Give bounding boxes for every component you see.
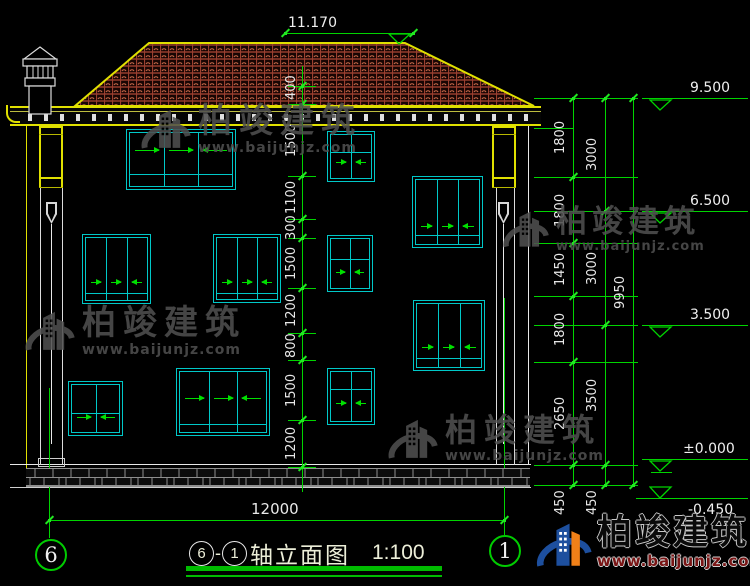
arrow-head: [449, 344, 455, 350]
sash-direction-arrow: [262, 282, 272, 283]
left-column-capital: [39, 126, 63, 188]
dim-extension-line: [534, 362, 638, 363]
dim-tick-dot: [604, 464, 607, 467]
window: [176, 368, 270, 436]
sash-direction-arrow: [355, 272, 364, 273]
arrow-head: [428, 344, 434, 350]
title-axis-right: 1: [222, 541, 247, 566]
dim-tick-dot: [572, 484, 575, 487]
window-transom: [331, 259, 369, 260]
dim-tick-dot: [301, 359, 304, 362]
window: [327, 368, 375, 425]
arrow-head: [340, 269, 346, 275]
title-text: 轴立面图: [250, 536, 350, 570]
window-transom: [417, 358, 481, 359]
window-inner-frame: [71, 384, 120, 433]
sash-direction-arrow: [443, 347, 454, 348]
level-triangle: [649, 460, 673, 472]
dim-tick-dot: [572, 295, 575, 298]
watermark: 柏竣建筑 www.baijunjz.com: [385, 414, 604, 468]
sash-direction-arrow: [356, 162, 366, 163]
watermark-url: www.baijunjz.com: [445, 448, 604, 464]
mid-dim-label: 1200: [284, 423, 299, 463]
watermark: 柏竣建筑 www.baijunjz.com: [500, 206, 705, 256]
level-label: 3.500: [690, 307, 730, 323]
arrow-head: [355, 159, 361, 165]
dim-tick-dot: [301, 419, 304, 422]
dim-tick-dot: [632, 97, 635, 100]
watermark-brand: 柏竣建筑: [198, 104, 362, 140]
dim-tick-dot: [572, 361, 575, 364]
window: [412, 176, 483, 248]
window-transom: [416, 235, 479, 236]
title-axis-left: 6: [189, 541, 214, 566]
dim-tick-dot: [301, 237, 304, 240]
sash-direction-arrow: [336, 162, 346, 163]
title-scale: 1:100: [372, 541, 425, 565]
arrow-head: [96, 279, 102, 285]
mid-dim-label: 1500: [284, 370, 299, 410]
arrow-head: [462, 223, 468, 229]
watermark-url: www.baijunjz.com: [198, 140, 362, 156]
level-stub: [651, 472, 672, 473]
arrow-head: [131, 279, 137, 285]
arrow-head: [341, 159, 347, 165]
right-dim-line-2: [605, 98, 606, 485]
window-mullion: [96, 385, 97, 432]
arrow-head: [100, 414, 106, 420]
sash-direction-arrow: [442, 226, 453, 227]
sash-direction-arrow: [463, 226, 474, 227]
level-triangle: [649, 326, 673, 338]
sash-direction-arrow: [336, 403, 346, 404]
dim-tick-dot: [604, 97, 607, 100]
window-inner-frame: [85, 237, 148, 301]
mid-dim-label: 400: [284, 70, 299, 106]
window-transom: [217, 293, 277, 294]
dim-extension-line: [534, 98, 638, 99]
bottom-dim-line: [49, 520, 505, 521]
sash-direction-arrow: [101, 417, 115, 418]
mid-dim-label: 1200: [284, 290, 299, 330]
window: [68, 381, 123, 436]
dim-tick-dot: [301, 287, 304, 290]
sash-direction-arrow: [214, 398, 233, 399]
arrow-head: [341, 400, 347, 406]
arrow-head: [116, 279, 122, 285]
window-mullion: [257, 238, 258, 299]
window-transom: [331, 389, 371, 390]
stone-plinth: [26, 468, 530, 487]
baijun-logo-icon: [533, 515, 593, 579]
sash-direction-arrow: [77, 417, 91, 418]
arrow-head: [448, 223, 454, 229]
window-mullion: [350, 239, 351, 288]
window-mullion: [209, 372, 210, 432]
mid-dim-label: 1500: [284, 243, 299, 283]
overall-width-label: 12000: [251, 500, 299, 518]
right-dim-label: 1800: [553, 117, 568, 157]
window-inner-frame: [216, 237, 278, 300]
mid-dim-label: 800: [284, 328, 299, 364]
sash-direction-arrow: [132, 282, 142, 283]
dim-tick-dot: [301, 332, 304, 335]
title-underline-thick: [186, 566, 442, 571]
baijun-logo-icon: [138, 104, 192, 158]
baijun-logo-icon: [22, 306, 76, 360]
window: [213, 234, 281, 303]
window-inner-frame: [416, 303, 482, 368]
arrow-head: [427, 223, 433, 229]
sash-direction-arrow: [465, 347, 476, 348]
plinth-bottom-line: [10, 487, 531, 488]
overall-height-label: 9950: [613, 272, 628, 312]
level-triangle: [649, 99, 673, 111]
dim-extension-line: [534, 177, 638, 178]
sash-direction-arrow: [111, 282, 121, 283]
window-mullion: [106, 238, 107, 300]
dim-tick-dot: [503, 519, 506, 522]
brand-logo: 柏竣建筑 www.baijunjz.com: [533, 515, 750, 579]
window-mullion: [351, 372, 352, 421]
dim-tick-dot: [572, 176, 575, 179]
right-dim-label: 1800: [553, 309, 568, 349]
dim-tick-dot: [301, 175, 304, 178]
sash-direction-arrow: [222, 282, 232, 283]
sash-direction-arrow: [356, 403, 366, 404]
title-underline-thin: [186, 575, 442, 577]
arrow-head: [464, 344, 470, 350]
dim-tick-dot: [604, 484, 607, 487]
dim-tick-dot: [412, 32, 415, 35]
dim-tick-dot: [301, 85, 304, 88]
sash-direction-arrow: [421, 226, 432, 227]
dim-tick-dot: [604, 324, 607, 327]
window-inner-frame: [179, 371, 267, 433]
dim-tick-dot: [572, 97, 575, 100]
window-transom: [130, 174, 232, 175]
dim-tick-dot: [632, 484, 635, 487]
mid-dim-label: 300: [284, 210, 299, 246]
sash-direction-arrow: [91, 282, 101, 283]
ridge-elevation-label: 11.170: [288, 15, 337, 31]
dim-tick-dot: [301, 466, 304, 469]
sash-direction-arrow: [336, 272, 345, 273]
arrow-head: [355, 400, 361, 406]
watermark-brand: 柏竣建筑: [556, 206, 705, 239]
axis-bubble-1: 1: [489, 535, 521, 567]
axis-bubble-6: 6: [35, 539, 67, 571]
elevation-drawing-canvas: 11.170 400 1500 1100 300 1500 1200 800 1…: [0, 0, 750, 586]
dim-tick-dot: [48, 519, 51, 522]
window-mullion: [127, 238, 128, 300]
level-label: 9.500: [690, 80, 730, 96]
arrow-head: [261, 279, 267, 285]
drawing-title: 6 - 1 轴立面图 1:100: [188, 536, 425, 570]
dim-extension-line: [534, 325, 638, 326]
window-transom: [180, 424, 266, 425]
watermark: 柏竣建筑 www.baijunjz.com: [138, 104, 362, 158]
dim-tick-dot: [301, 218, 304, 221]
level-label: ±0.000: [683, 441, 735, 457]
watermark: 柏竣建筑 www.baijunjz.com: [22, 306, 246, 360]
window-mullion: [237, 372, 238, 432]
sash-direction-arrow: [185, 398, 204, 399]
watermark-url: www.baijunjz.com: [556, 239, 705, 254]
sash-direction-arrow: [422, 347, 433, 348]
level-triangle: [649, 486, 673, 499]
brand-name: 柏竣建筑: [597, 515, 750, 552]
arrow-head: [241, 395, 247, 401]
arrow-head: [227, 279, 233, 285]
arrow-head: [247, 279, 253, 285]
window-inner-frame: [330, 238, 370, 289]
chimney: [22, 45, 58, 115]
sash-direction-arrow: [242, 398, 261, 399]
brand-url: www.baijunjz.com: [597, 552, 750, 570]
window-inner-frame: [330, 371, 372, 422]
baijun-logo-icon: [500, 206, 550, 256]
watermark-url: www.baijunjz.com: [82, 342, 246, 358]
arrow-head: [354, 269, 360, 275]
watermark-brand: 柏竣建筑: [445, 414, 604, 448]
window: [413, 300, 485, 371]
arrow-head: [199, 395, 205, 401]
right-dim-line-3: [633, 98, 634, 485]
dim-extension-line: [534, 485, 638, 486]
arrow-head: [86, 414, 92, 420]
arrow-head: [228, 395, 234, 401]
window: [327, 235, 373, 292]
dim-tick-dot: [284, 32, 287, 35]
window-transom: [72, 413, 119, 414]
watermark-brand: 柏竣建筑: [82, 306, 246, 342]
right-dim-label: 3000: [585, 134, 600, 174]
sash-direction-arrow: [242, 282, 252, 283]
window-inner-frame: [415, 179, 480, 245]
right-dim-label: 3500: [585, 375, 600, 415]
right-column-capital: [492, 126, 516, 188]
baijun-logo-icon: [385, 414, 439, 468]
window-mullion: [237, 238, 238, 299]
window-transom: [86, 293, 147, 294]
title-separator: -: [215, 543, 221, 564]
window: [82, 234, 151, 304]
